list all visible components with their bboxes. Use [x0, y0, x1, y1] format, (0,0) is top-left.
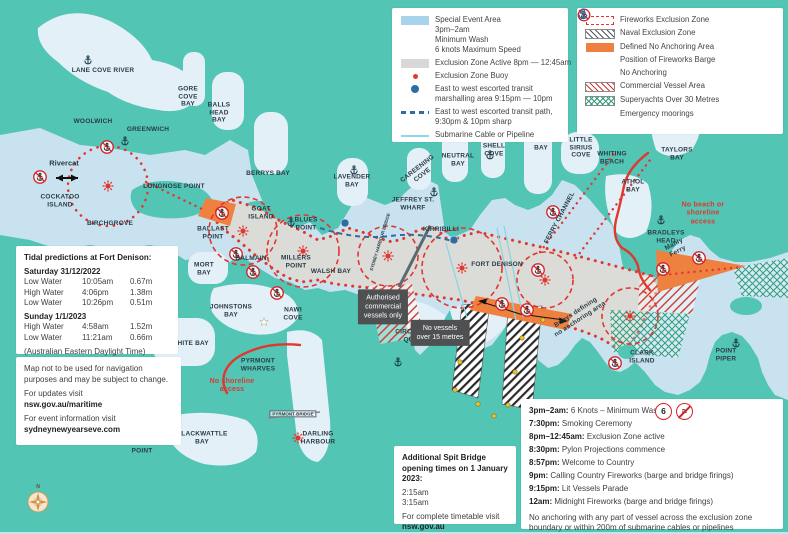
spit-time: 3:15am [402, 498, 508, 509]
exclusion-buoy-icon [400, 72, 430, 79]
naval-exclusion-swatch [585, 29, 615, 39]
compass-rose [28, 492, 48, 512]
vessel-size-limit-box: No vessels over 15 metres [411, 320, 470, 346]
marshalling-area-dot [341, 219, 349, 227]
anchoring-note: No anchoring with any part of vessel acr… [529, 513, 775, 534]
submarine-cable-swatch [400, 131, 430, 137]
schedule-item: 9pm: Calling Country Fireworks (barge an… [529, 471, 775, 482]
tidal-predictions-box: Tidal predictions at Fort Denison: Satur… [16, 246, 178, 354]
schedule-item: 9:15pm: Lit Vessels Parade [529, 484, 775, 495]
updates-text: For updates visit [24, 389, 173, 400]
spit-time: 2:15am [402, 488, 508, 499]
tidal-day2-heading: Sunday 1/1/2023 [24, 312, 170, 323]
event-url: sydneynewyearseve.com [24, 425, 173, 436]
schedule-item: 7:30pm: Smoking Ceremony [529, 419, 775, 430]
superyacht-swatch [585, 96, 615, 106]
speed-limit-6-icon: 6 [655, 403, 672, 420]
event-schedule-box: 6 3pm–2am: 6 Knots – Minimum Wash 7:30pm… [521, 399, 783, 529]
spit-bridge-box: Additional Spit Bridge opening times on … [394, 446, 516, 524]
tidal-timezone-note: (Australian Eastern Daylight Time) [24, 347, 170, 358]
disclaimer-text: Map not to be used for navigation purpos… [24, 364, 173, 385]
tidal-row: Low Water10:26pm0.51m [24, 298, 170, 309]
special-event-area-swatch [400, 16, 430, 25]
schedule-item: 8pm–12:45am: Exclusion Zone active [529, 432, 775, 443]
legend-left: Special Event Area 3pm–2am Minimum Wash … [392, 8, 568, 142]
no-anchoring-area-swatch [585, 43, 615, 52]
exclusion-zone-swatch [400, 59, 430, 68]
authorised-vessels-box: Authorised commercial vessels only [358, 289, 408, 324]
tidal-row: High Water4:58am1.52m [24, 322, 170, 333]
compass-north-label: N [36, 484, 40, 490]
transit-path-swatch [400, 108, 430, 114]
event-info-text: For event information visit [24, 414, 173, 425]
legend-right: Fireworks Exclusion Zone Naval Exclusion… [577, 8, 783, 134]
maritime-url: nsw.gov.au/maritime [24, 400, 173, 411]
commercial-vessel-swatch [585, 82, 615, 92]
tidal-title: Tidal predictions at Fort Denison: [24, 253, 170, 264]
disclaimer-box: Map not to be used for navigation purpos… [16, 357, 181, 445]
schedule-item: 12am: Midnight Fireworks (barge and brid… [529, 497, 775, 508]
tidal-row: Low Water10:05am0.67m [24, 277, 170, 288]
spit-url: nsw.gov.au [402, 522, 508, 533]
tidal-row: Low Water11:21am0.66m [24, 333, 170, 344]
tidal-day1-heading: Saturday 31/12/2022 [24, 267, 170, 278]
schedule-item: 8:57pm: Welcome to Country [529, 458, 775, 469]
spit-footer: For complete timetable visit [402, 512, 508, 523]
schedule-item: 8:30pm: Pylon Projections commence [529, 445, 775, 456]
schedule-item: 3pm–2am: 6 Knots – Minimum Wash [529, 406, 775, 417]
marshalling-area-icon [400, 85, 430, 93]
no-wash-icon [676, 403, 693, 420]
spit-title: Additional Spit Bridge opening times on … [402, 453, 508, 485]
tidal-row: High Water4:06pm1.38m [24, 288, 170, 299]
clark-island [618, 345, 636, 359]
marshalling-area-dot [450, 236, 458, 244]
nye-harbour-map-page: { "colors":{"land":"#52c5b5","water":"#c… [0, 0, 788, 532]
